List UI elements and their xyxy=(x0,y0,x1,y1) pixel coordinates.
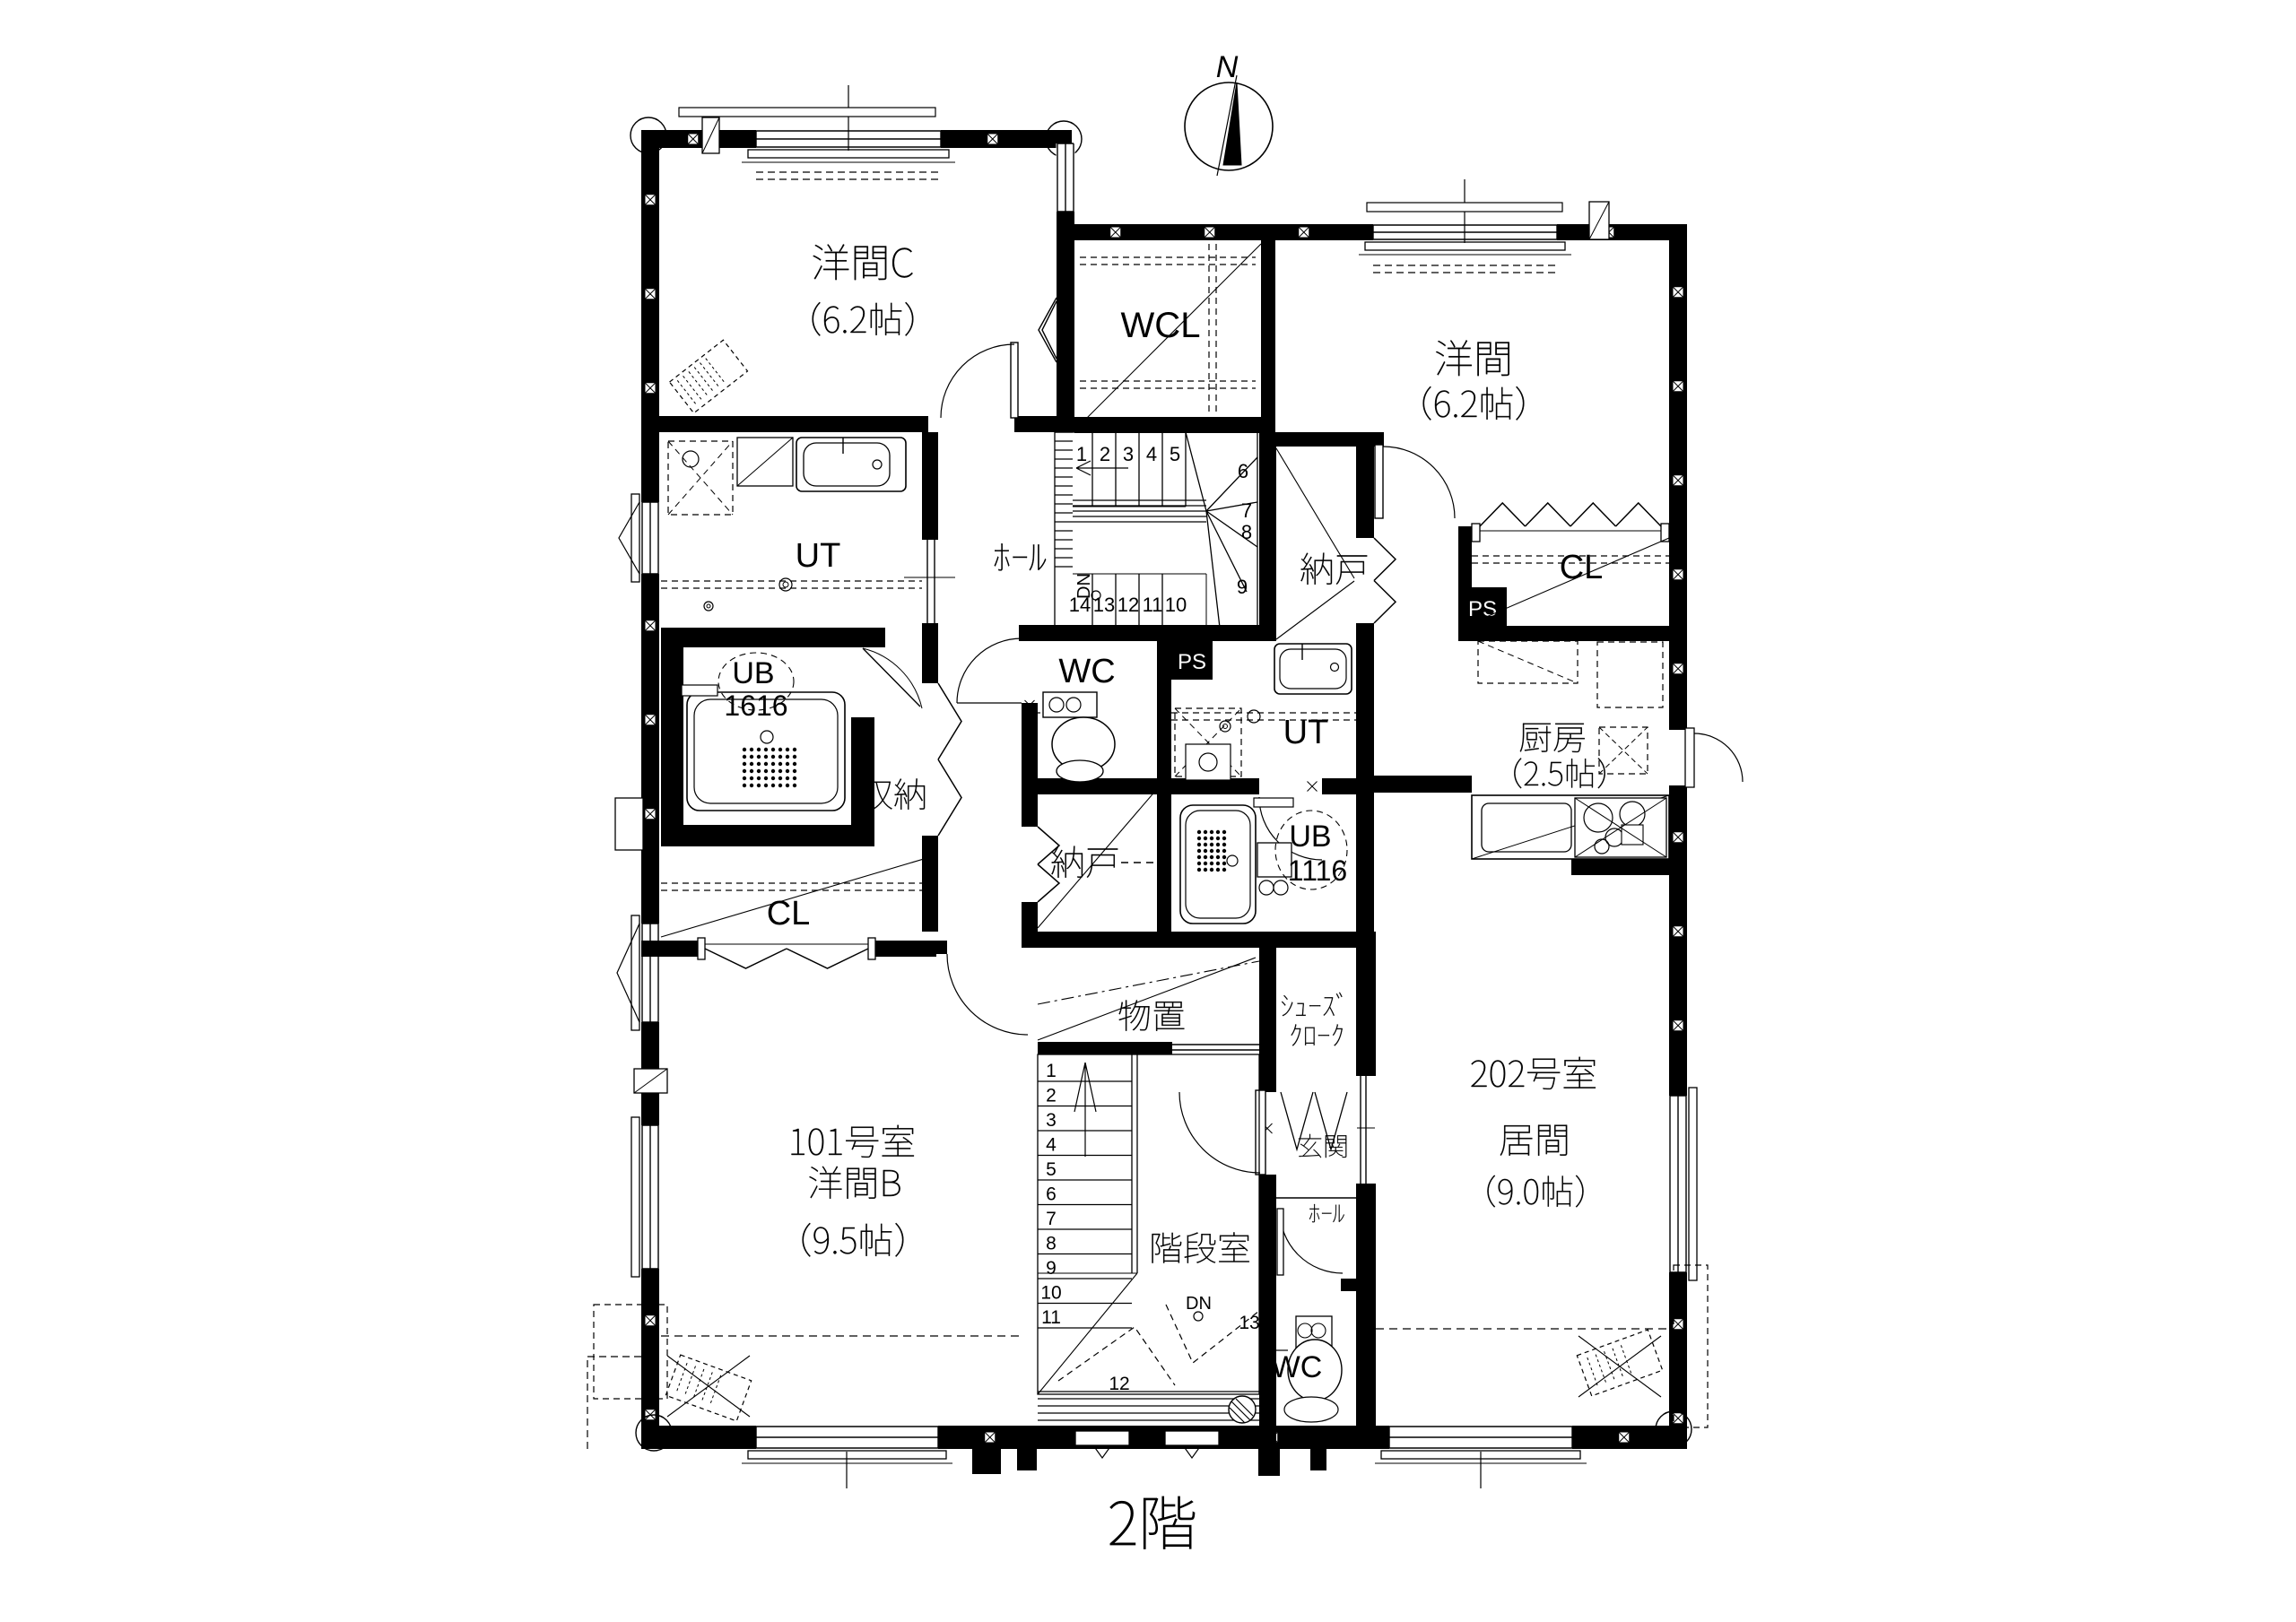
svg-text:5: 5 xyxy=(1170,443,1180,465)
svg-text:3: 3 xyxy=(1046,1110,1057,1131)
svg-text:CL: CL xyxy=(767,895,811,932)
svg-text:13: 13 xyxy=(1093,594,1115,616)
svg-text:UB: UB xyxy=(732,656,774,690)
svg-text:1: 1 xyxy=(1076,443,1087,465)
svg-text:10: 10 xyxy=(1040,1283,1061,1304)
svg-text:3: 3 xyxy=(1123,443,1134,465)
svg-text:N: N xyxy=(1216,50,1239,84)
svg-text:11: 11 xyxy=(1041,1307,1061,1328)
svg-text:12: 12 xyxy=(1118,594,1139,616)
svg-text:UT: UT xyxy=(1283,714,1329,751)
svg-text:WC: WC xyxy=(1272,1350,1323,1384)
svg-text:8: 8 xyxy=(1241,521,1252,543)
svg-text:DN: DN xyxy=(1186,1294,1212,1314)
svg-text:PS: PS xyxy=(1178,650,1206,674)
svg-text:11: 11 xyxy=(1143,594,1163,616)
svg-text:7: 7 xyxy=(1046,1209,1057,1229)
svg-text:6: 6 xyxy=(1238,460,1248,482)
svg-text:5: 5 xyxy=(1046,1159,1057,1180)
svg-text:1116: 1116 xyxy=(1288,854,1347,887)
svg-text:UT: UT xyxy=(796,537,841,575)
svg-text:12: 12 xyxy=(1109,1374,1129,1394)
svg-text:6: 6 xyxy=(1046,1184,1057,1205)
svg-text:WCL: WCL xyxy=(1121,306,1201,345)
svg-text:2: 2 xyxy=(1100,443,1110,465)
svg-text:4: 4 xyxy=(1046,1135,1057,1156)
svg-text:10: 10 xyxy=(1165,594,1187,616)
svg-text:2: 2 xyxy=(1046,1086,1057,1106)
svg-text:PS: PS xyxy=(1468,597,1497,621)
svg-text:8: 8 xyxy=(1046,1234,1057,1254)
svg-text:1: 1 xyxy=(1046,1061,1057,1081)
svg-text:UB: UB xyxy=(1289,820,1331,854)
svg-text:7: 7 xyxy=(1241,499,1252,522)
svg-text:9: 9 xyxy=(1237,576,1248,598)
svg-text:9: 9 xyxy=(1046,1258,1057,1279)
svg-text:1616: 1616 xyxy=(724,690,787,722)
svg-text:4: 4 xyxy=(1146,443,1157,465)
svg-text:WC: WC xyxy=(1058,653,1115,690)
svg-text:CL: CL xyxy=(1560,549,1604,586)
svg-text:13: 13 xyxy=(1239,1313,1259,1333)
